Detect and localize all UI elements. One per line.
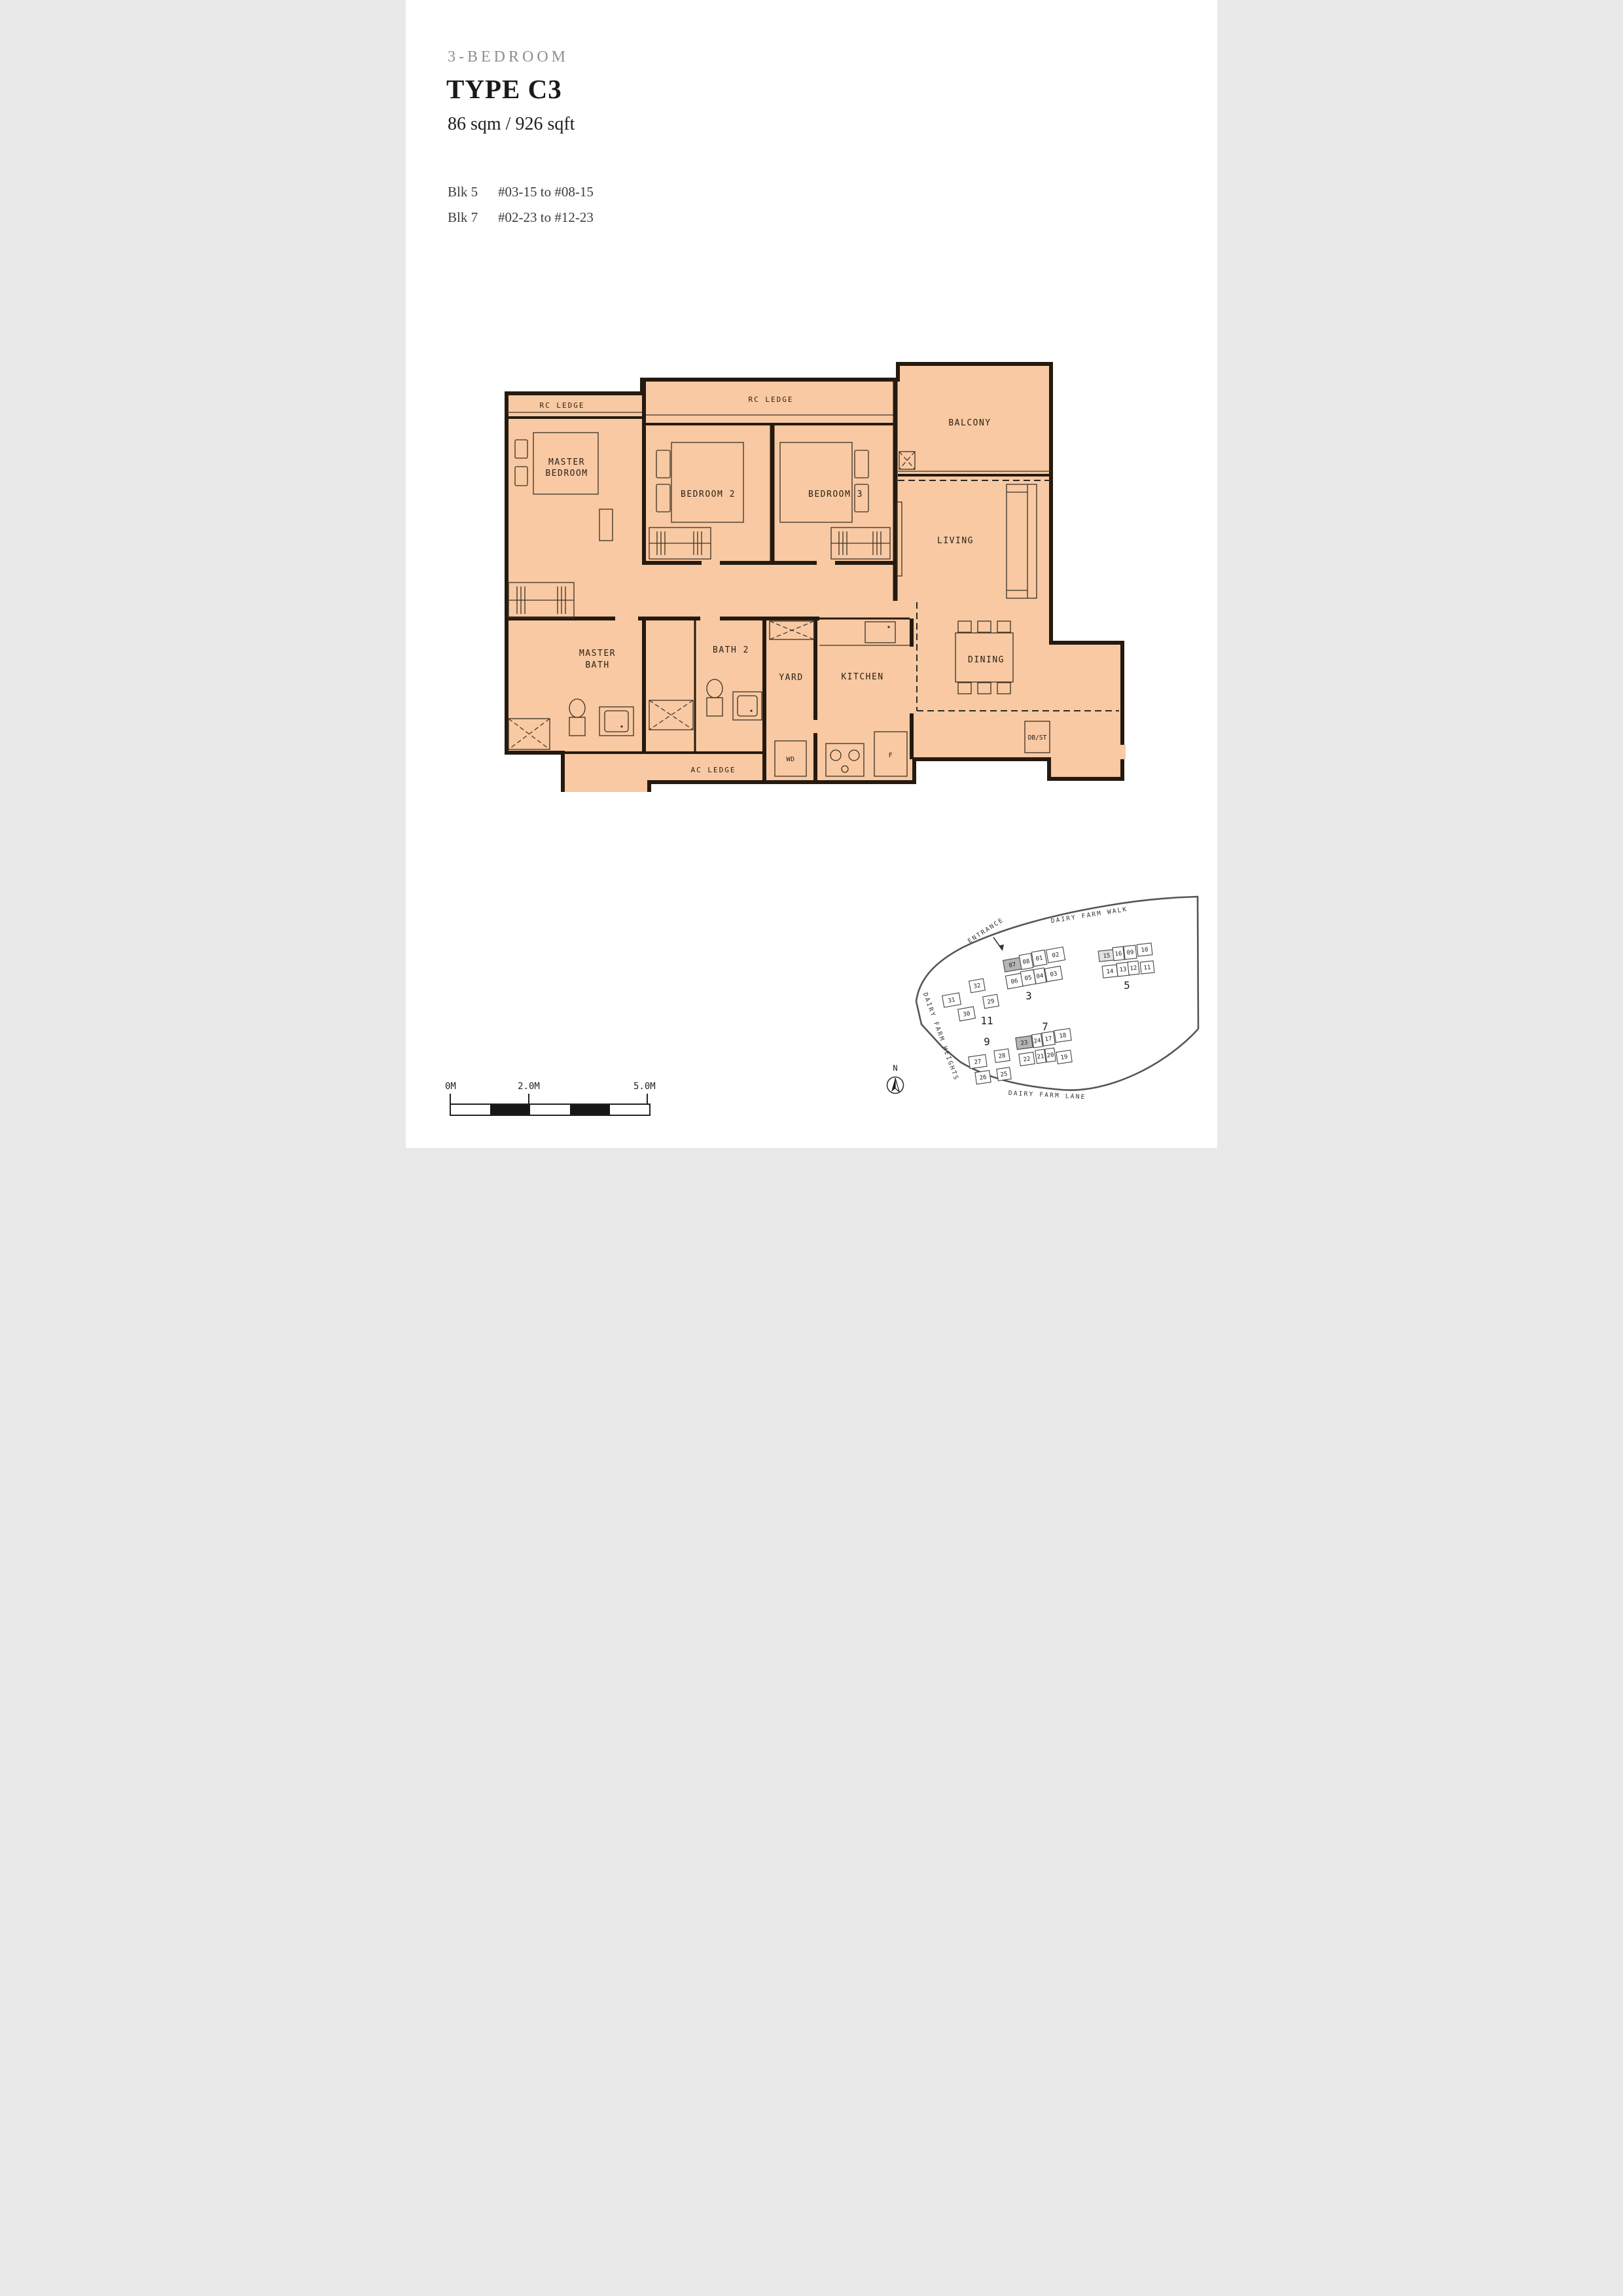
block-5-label: 5 <box>1124 979 1130 992</box>
entrance-label: ENTRANCE <box>967 916 1005 945</box>
unit-category: 3-BEDROOM <box>448 48 569 66</box>
label-yard: YARD <box>779 673 803 683</box>
label-rc-ledge-master: RC LEDGE <box>540 401 585 410</box>
availability-units: #02-23 to #12-23 <box>498 209 594 226</box>
road-dairy-farm-lane: DAIRY FARM LANE <box>1008 1090 1086 1101</box>
svg-text:12: 12 <box>1130 965 1137 972</box>
scale-tick-0: 0M <box>445 1081 456 1092</box>
label-bath2: BATH 2 <box>713 645 749 655</box>
label-master-bedroom-2: BEDROOM <box>545 469 588 478</box>
scale-bar-segment <box>490 1105 530 1115</box>
scale-tick-5: 5.0M <box>633 1081 656 1092</box>
svg-text:04: 04 <box>1036 973 1044 980</box>
svg-text:27: 27 <box>974 1058 982 1066</box>
svg-text:19: 19 <box>1060 1054 1068 1061</box>
site-map: DAIRY FARM WALK DAIRY FARM HEIGHTS DAIRY… <box>883 890 1204 1119</box>
scale-tick-mark <box>528 1094 529 1103</box>
svg-text:22: 22 <box>1023 1056 1031 1063</box>
scale-tick-mark <box>647 1094 648 1103</box>
svg-text:24: 24 <box>1033 1037 1041 1045</box>
scale-tick-2: 2.0M <box>514 1081 543 1092</box>
svg-text:06: 06 <box>1010 978 1018 986</box>
north-compass: N <box>887 1064 904 1094</box>
svg-text:14: 14 <box>1106 968 1114 975</box>
block-9-label: 9 <box>984 1035 990 1048</box>
svg-text:09: 09 <box>1126 949 1134 956</box>
label-balcony: BALCONY <box>948 418 991 428</box>
svg-text:10: 10 <box>1141 946 1149 954</box>
svg-text:29: 29 <box>987 998 995 1006</box>
label-kitchen: KITCHEN <box>841 672 883 682</box>
label-db-st: DB/ST <box>1028 734 1047 742</box>
label-dining: DINING <box>968 655 1005 665</box>
label-ac-ledge: AC LEDGE <box>691 766 736 774</box>
page-title: TYPE C3 <box>446 73 562 105</box>
entrance-door-gap <box>1119 745 1126 759</box>
label-master-bedroom: MASTER <box>548 457 585 467</box>
svg-text:15: 15 <box>1103 952 1111 960</box>
label-bedroom2: BEDROOM 2 <box>681 490 736 499</box>
availability-units: #03-15 to #08-15 <box>498 184 594 200</box>
svg-text:20: 20 <box>1046 1052 1054 1059</box>
svg-text:17: 17 <box>1044 1035 1052 1043</box>
scale-bar-track <box>450 1103 651 1116</box>
availability-block: Blk 7 <box>448 209 497 226</box>
svg-text:11: 11 <box>1143 964 1151 971</box>
svg-text:31: 31 <box>948 997 955 1005</box>
svg-text:02: 02 <box>1052 952 1060 960</box>
svg-text:07: 07 <box>1008 961 1016 969</box>
svg-text:05: 05 <box>1024 975 1032 982</box>
block-11: 31 32 29 30 11 <box>942 978 999 1027</box>
block-5: 15 16 09 10 14 13 12 11 5 <box>1098 943 1154 992</box>
label-master-bath-2: BATH <box>585 660 609 670</box>
label-bedroom3: BEDROOM 3 <box>808 490 863 499</box>
svg-text:01: 01 <box>1035 955 1043 963</box>
block-11-label: 11 <box>980 1014 993 1027</box>
north-label: N <box>893 1064 897 1073</box>
brochure-page: 3-BEDROOM TYPE C3 86 sqm / 926 sqft Blk … <box>406 0 1217 1148</box>
svg-text:25: 25 <box>1000 1071 1008 1078</box>
svg-text:26: 26 <box>979 1074 987 1081</box>
svg-text:32: 32 <box>973 982 981 990</box>
svg-text:18: 18 <box>1059 1032 1067 1039</box>
svg-text:23: 23 <box>1020 1039 1028 1047</box>
label-fridge: F <box>889 752 893 759</box>
svg-text:28: 28 <box>998 1052 1006 1060</box>
block-7-label: 7 <box>1042 1020 1048 1033</box>
svg-text:03: 03 <box>1050 971 1058 978</box>
block-3-label: 3 <box>1026 990 1032 1002</box>
entrance-marker: ENTRANCE <box>967 916 1005 950</box>
svg-text:13: 13 <box>1119 966 1127 973</box>
label-wd: WD <box>786 756 794 763</box>
block-3: 07 08 01 02 06 05 04 03 3 <box>1003 947 1065 1002</box>
availability-block: Blk 5 <box>448 184 497 200</box>
svg-text:21: 21 <box>1037 1053 1044 1060</box>
svg-text:16: 16 <box>1115 950 1122 958</box>
unit-area: 86 sqm / 926 sqft <box>448 114 575 135</box>
label-living: LIVING <box>937 536 974 546</box>
block-9: 9 27 28 26 25 <box>969 1035 1011 1084</box>
floor-plan: RC LEDGE RC LEDGE BALCONY MASTER BEDROOM… <box>497 347 1158 792</box>
scale-bar-segment <box>570 1105 610 1115</box>
svg-text:30: 30 <box>963 1011 971 1018</box>
label-master-bath: MASTER <box>579 649 616 658</box>
scale-tick-mark <box>450 1094 451 1103</box>
apartment-footprint <box>507 364 1122 792</box>
svg-text:08: 08 <box>1022 958 1030 966</box>
label-rc-ledge-bedrooms: RC LEDGE <box>749 395 794 404</box>
block-7: 7 23 24 17 18 22 21 20 19 <box>1016 1020 1072 1066</box>
